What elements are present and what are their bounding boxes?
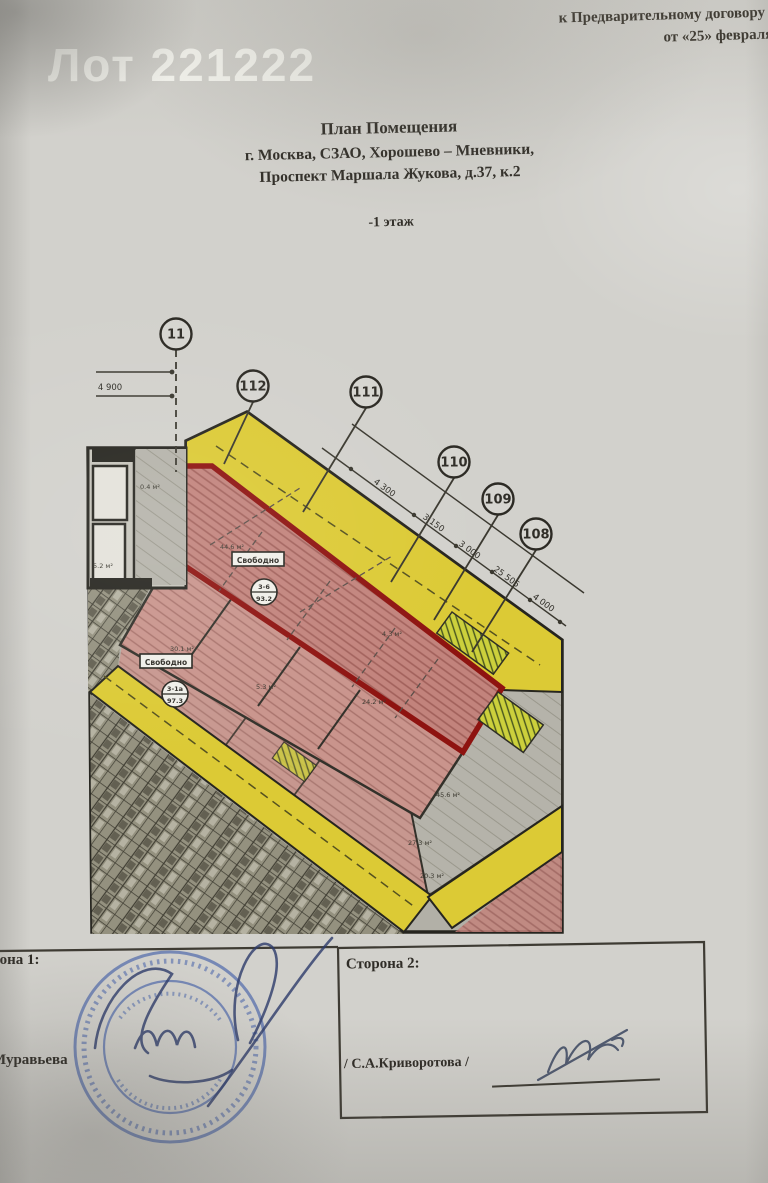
table-top-border-left — [0, 947, 338, 951]
lot-watermark: Лот 221222 — [48, 38, 316, 92]
photographed-document-page: Лот 221222 Приложени к Предварительному … — [0, 0, 768, 1183]
party1-label: Сторона 1: — [0, 952, 40, 969]
signature-section-graphics — [0, 0, 768, 1183]
party2-name: / С.А.Криворотова / — [344, 1055, 469, 1073]
party1-name: Муравьева — [0, 1052, 68, 1069]
party2-signature — [538, 1030, 627, 1080]
party2-label: Сторона 2: — [346, 955, 420, 973]
round-stamp — [75, 952, 265, 1142]
